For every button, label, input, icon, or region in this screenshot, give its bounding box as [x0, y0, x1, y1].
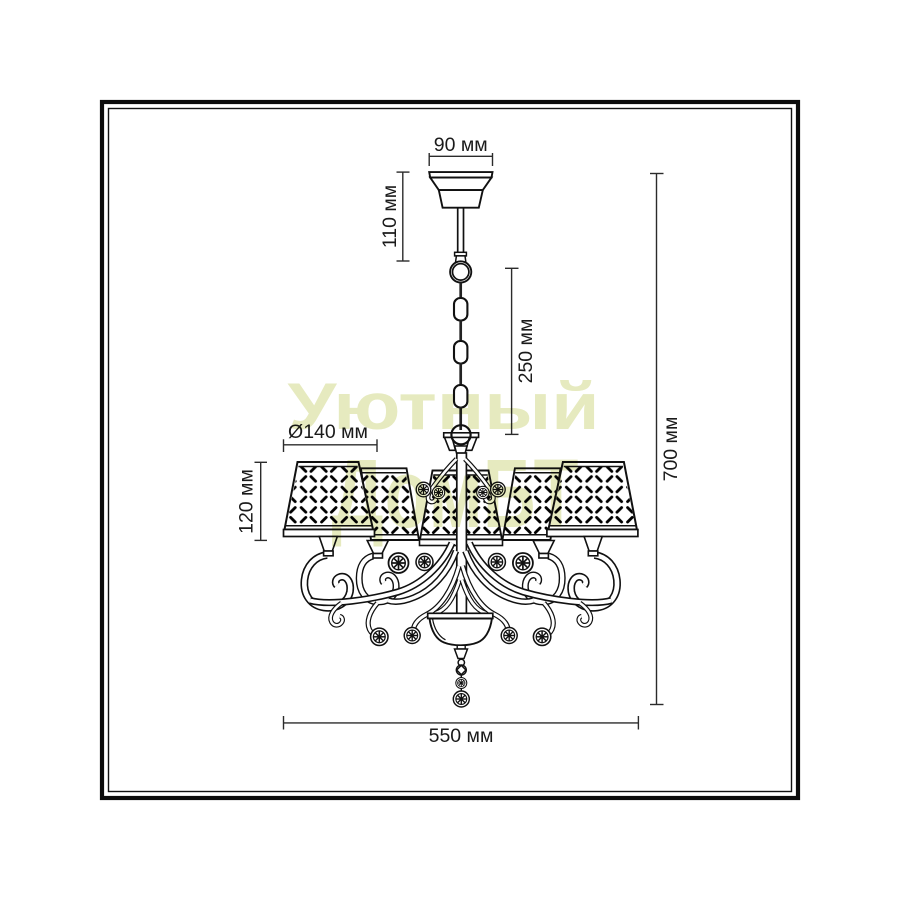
svg-text:700 мм: 700 мм [660, 417, 682, 482]
svg-text:120 мм: 120 мм [236, 469, 258, 534]
svg-text:ДомБТ: ДомБТ [332, 439, 579, 548]
svg-text:Уютный: Уютный [288, 369, 600, 443]
svg-text:110 мм: 110 мм [379, 185, 401, 248]
svg-text:90 мм: 90 мм [434, 134, 488, 156]
svg-text:550 мм: 550 мм [429, 725, 494, 747]
